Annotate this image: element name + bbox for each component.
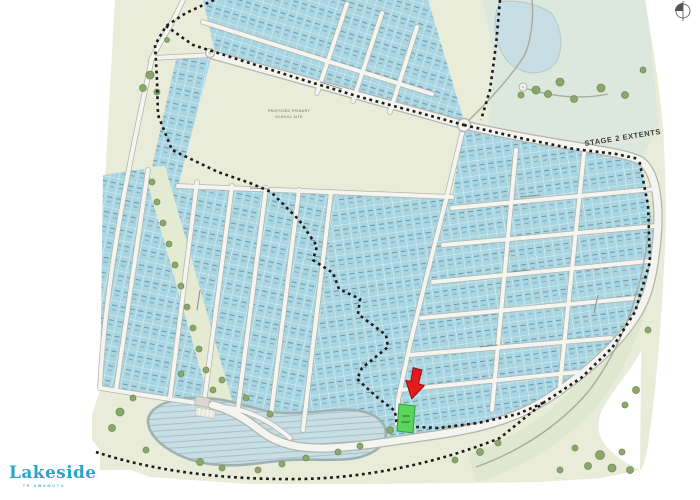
svg-text:TE AWAMUTU: TE AWAMUTU xyxy=(23,484,65,488)
highlighted-lot[interactable]: 1503 626m² xyxy=(397,404,415,433)
svg-text:Lakeside: Lakeside xyxy=(9,463,97,483)
svg-text:SCHOOL SITE: SCHOOL SITE xyxy=(275,115,303,119)
svg-text:626m²: 626m² xyxy=(402,420,411,424)
masterplan-page: PROPOSED PRIMARY SCHOOL SITE STAGE 2 EXT… xyxy=(0,0,700,500)
svg-text:PROPOSED PRIMARY: PROPOSED PRIMARY xyxy=(268,109,310,113)
masterplan-map: PROPOSED PRIMARY SCHOOL SITE STAGE 2 EXT… xyxy=(0,0,700,500)
brand-logo: Lakeside TE AWAMUTU xyxy=(9,463,97,488)
svg-text:1503: 1503 xyxy=(403,414,410,418)
north-arrow-icon xyxy=(675,1,690,21)
